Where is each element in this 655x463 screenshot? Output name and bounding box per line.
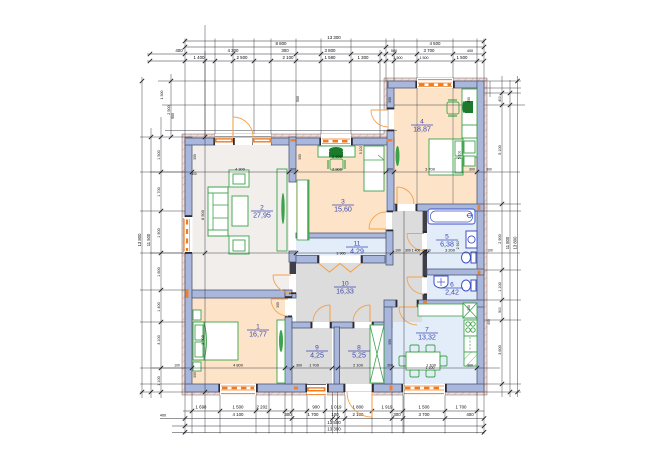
svg-text:400: 400: [466, 412, 474, 417]
svg-text:15,60: 15,60: [334, 206, 352, 214]
svg-text:1 700: 1 700: [309, 363, 320, 368]
svg-text:3 900: 3 900: [200, 334, 205, 345]
svg-text:3 800: 3 800: [325, 48, 337, 53]
svg-text:5,25: 5,25: [352, 352, 366, 360]
svg-text:1 300: 1 300: [160, 91, 164, 100]
svg-text:4 500: 4 500: [430, 41, 442, 46]
svg-text:4 100: 4 100: [233, 412, 245, 417]
svg-text:300: 300: [276, 302, 280, 308]
svg-text:900: 900: [171, 113, 175, 119]
svg-text:4,29: 4,29: [350, 248, 364, 256]
svg-text:900: 900: [312, 405, 320, 410]
svg-text:400: 400: [160, 414, 166, 418]
svg-text:1 800: 1 800: [353, 405, 365, 410]
svg-text:16,33: 16,33: [336, 288, 354, 296]
svg-text:2 900: 2 900: [498, 234, 502, 244]
svg-text:13 800: 13 800: [137, 233, 142, 246]
svg-text:13 300: 13 300: [327, 35, 341, 40]
svg-text:500: 500: [296, 96, 300, 102]
svg-text:1 700: 1 700: [157, 187, 161, 197]
svg-text:100: 100: [395, 249, 401, 253]
svg-text:18,87: 18,87: [413, 126, 431, 134]
svg-text:300: 300: [388, 97, 392, 103]
svg-text:5: 5: [445, 234, 449, 241]
svg-text:1 600: 1 600: [157, 267, 161, 277]
svg-text:300: 300: [193, 372, 197, 378]
svg-text:300: 300: [405, 249, 411, 253]
svg-text:300: 300: [290, 168, 296, 172]
svg-text:5 100: 5 100: [458, 151, 462, 160]
svg-text:3 700: 3 700: [419, 412, 431, 417]
svg-text:1 500: 1 500: [457, 55, 469, 60]
svg-text:13 800: 13 800: [513, 236, 518, 249]
svg-text:27,95: 27,95: [253, 212, 271, 220]
svg-text:900: 900: [498, 307, 502, 313]
svg-text:4 300: 4 300: [228, 48, 240, 53]
svg-text:4 300: 4 300: [235, 167, 246, 172]
svg-text:13 300: 13 300: [327, 426, 341, 431]
svg-text:3 700: 3 700: [425, 167, 436, 172]
svg-text:8: 8: [357, 345, 361, 352]
svg-text:300: 300: [298, 154, 302, 160]
svg-text:8 800: 8 800: [276, 41, 288, 46]
svg-text:13 500: 13 500: [327, 420, 341, 425]
svg-text:300: 300: [467, 305, 471, 311]
svg-text:2,42: 2,42: [445, 289, 459, 297]
svg-text:400: 400: [467, 49, 473, 53]
svg-text:1 100: 1 100: [426, 363, 437, 368]
svg-text:2 900: 2 900: [332, 154, 343, 159]
svg-text:300: 300: [467, 364, 473, 368]
svg-text:1 919: 1 919: [382, 405, 394, 410]
svg-text:2 910: 2 910: [456, 241, 460, 250]
svg-text:1 100: 1 100: [157, 376, 161, 386]
svg-text:2 900: 2 900: [332, 167, 343, 172]
svg-text:1 580: 1 580: [325, 55, 337, 60]
svg-text:1 500: 1 500: [157, 150, 161, 160]
svg-text:1 700: 1 700: [308, 412, 320, 417]
svg-text:7: 7: [425, 327, 429, 334]
svg-text:2 500: 2 500: [167, 105, 171, 115]
svg-text:300: 300: [393, 412, 401, 417]
svg-text:300: 300: [284, 412, 292, 417]
svg-text:1 019: 1 019: [331, 405, 343, 410]
svg-text:1 500: 1 500: [420, 56, 429, 60]
svg-text:2 202: 2 202: [257, 405, 269, 410]
svg-text:1: 1: [256, 324, 260, 331]
svg-text:5 100: 5 100: [498, 145, 502, 155]
svg-text:500: 500: [391, 49, 397, 53]
svg-text:300: 300: [191, 172, 197, 176]
svg-text:300: 300: [387, 364, 393, 368]
svg-text:11 800: 11 800: [505, 236, 510, 249]
svg-text:2: 2: [260, 205, 264, 212]
svg-text:1 300: 1 300: [358, 55, 370, 60]
svg-text:100: 100: [174, 364, 180, 368]
svg-text:100: 100: [487, 249, 493, 253]
svg-text:300: 300: [486, 168, 492, 172]
svg-text:4 800: 4 800: [233, 363, 244, 368]
svg-text:300: 300: [296, 364, 302, 368]
svg-text:11 500: 11 500: [146, 233, 151, 246]
svg-text:6 500: 6 500: [200, 209, 205, 220]
svg-text:3: 3: [341, 199, 345, 206]
svg-text:9: 9: [315, 345, 319, 352]
svg-text:400: 400: [175, 48, 183, 53]
svg-text:1 400: 1 400: [157, 302, 161, 312]
svg-text:5 100: 5 100: [359, 146, 363, 155]
svg-text:1 400: 1 400: [194, 55, 206, 60]
svg-text:1 698: 1 698: [196, 405, 208, 410]
svg-text:2 500: 2 500: [237, 55, 249, 60]
svg-text:11: 11: [354, 241, 361, 248]
svg-text:1 900: 1 900: [157, 228, 161, 238]
svg-text:300: 300: [387, 168, 393, 172]
svg-text:3 600: 3 600: [498, 345, 502, 355]
svg-text:100: 100: [331, 412, 339, 417]
svg-text:400: 400: [498, 96, 502, 102]
svg-text:1 500: 1 500: [419, 405, 431, 410]
svg-text:4,25: 4,25: [310, 352, 324, 360]
svg-text:1 400: 1 400: [412, 249, 421, 253]
svg-text:300: 300: [193, 154, 197, 160]
svg-text:3 100: 3 100: [157, 335, 161, 345]
svg-text:300: 300: [467, 97, 471, 103]
svg-text:16,77: 16,77: [249, 331, 267, 339]
svg-text:400: 400: [425, 249, 431, 253]
svg-text:1 500: 1 500: [394, 56, 403, 60]
svg-text:3 900: 3 900: [336, 251, 345, 255]
svg-text:300: 300: [281, 48, 289, 53]
svg-text:2 100: 2 100: [353, 363, 364, 368]
svg-text:3 700: 3 700: [424, 48, 436, 53]
svg-text:4: 4: [420, 119, 424, 126]
svg-text:13,32: 13,32: [418, 334, 436, 342]
svg-text:400: 400: [487, 319, 491, 325]
svg-text:300: 300: [388, 339, 392, 345]
svg-text:2 100: 2 100: [283, 55, 295, 60]
svg-text:6: 6: [450, 282, 454, 289]
svg-text:1 500: 1 500: [233, 405, 245, 410]
svg-text:300: 300: [469, 168, 475, 172]
svg-text:10: 10: [341, 281, 349, 288]
svg-text:1 700: 1 700: [456, 405, 468, 410]
svg-text:6,38: 6,38: [440, 241, 454, 249]
svg-text:1 100: 1 100: [498, 282, 502, 292]
